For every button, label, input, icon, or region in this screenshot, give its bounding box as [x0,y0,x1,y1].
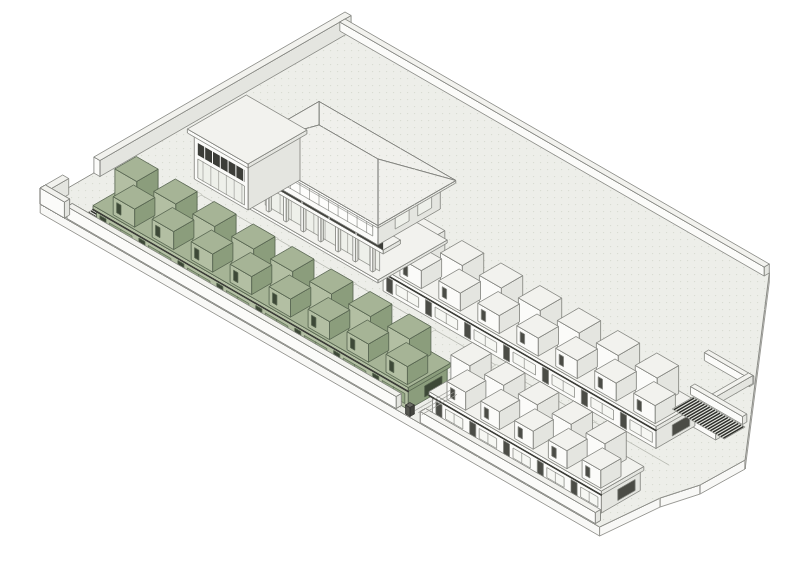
drawing-canvas [0,0,800,562]
bollard [406,403,415,417]
site-axonometric-drawing [0,0,800,562]
